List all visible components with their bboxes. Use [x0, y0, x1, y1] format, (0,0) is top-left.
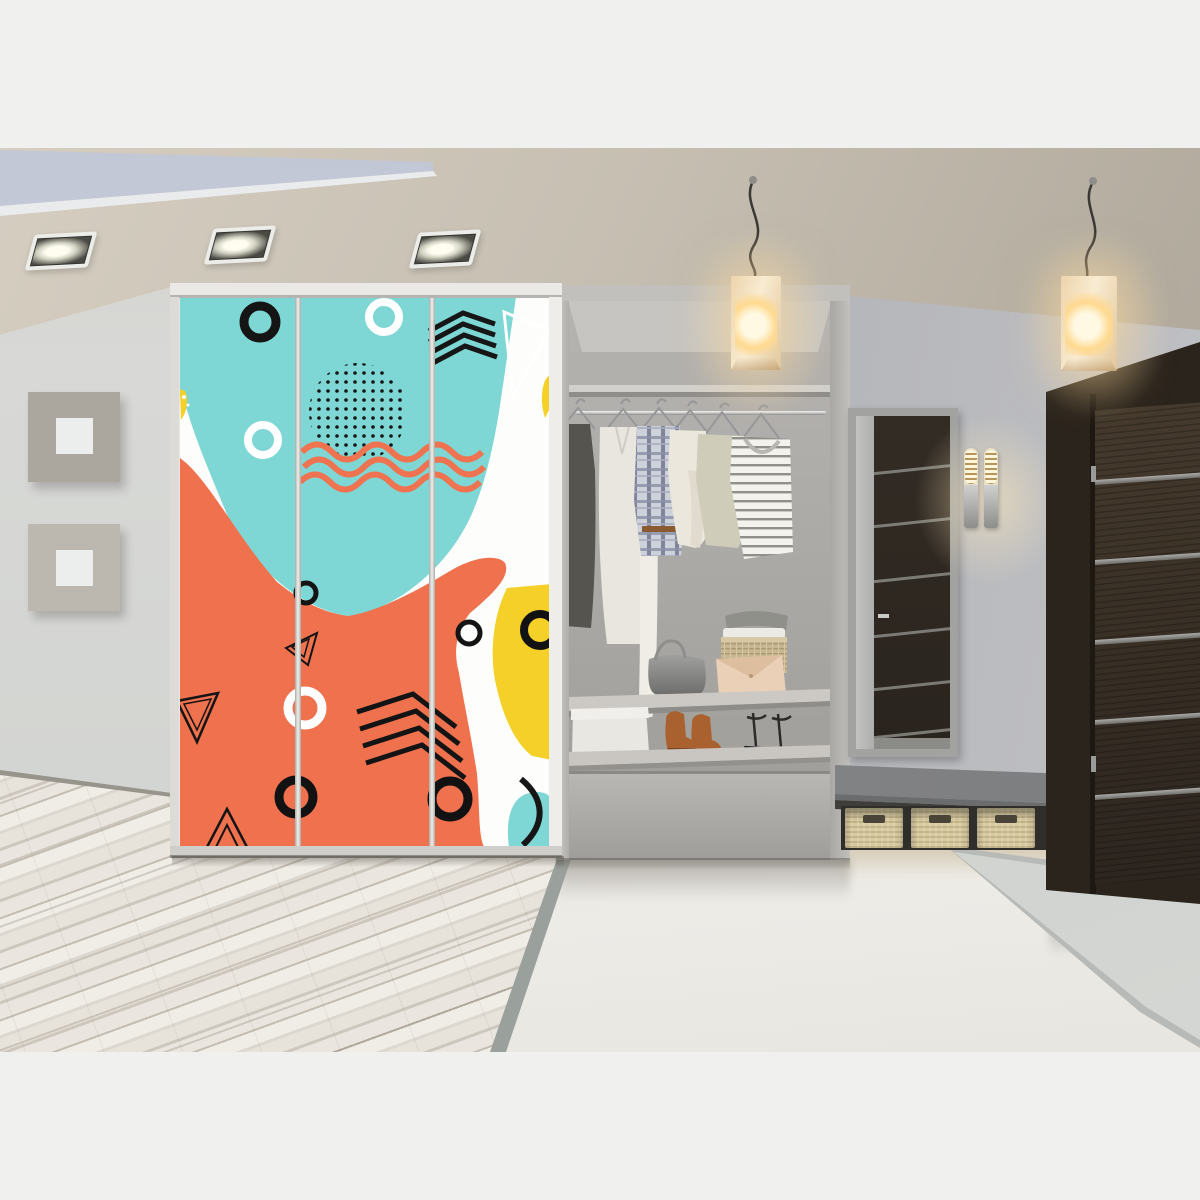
pendant-lamp-right — [1061, 276, 1117, 371]
screenshot-canvas — [0, 0, 1200, 1200]
photo-area — [0, 148, 1200, 1052]
interior-scene — [0, 148, 1200, 1052]
pendant-lamp-left — [731, 276, 781, 370]
